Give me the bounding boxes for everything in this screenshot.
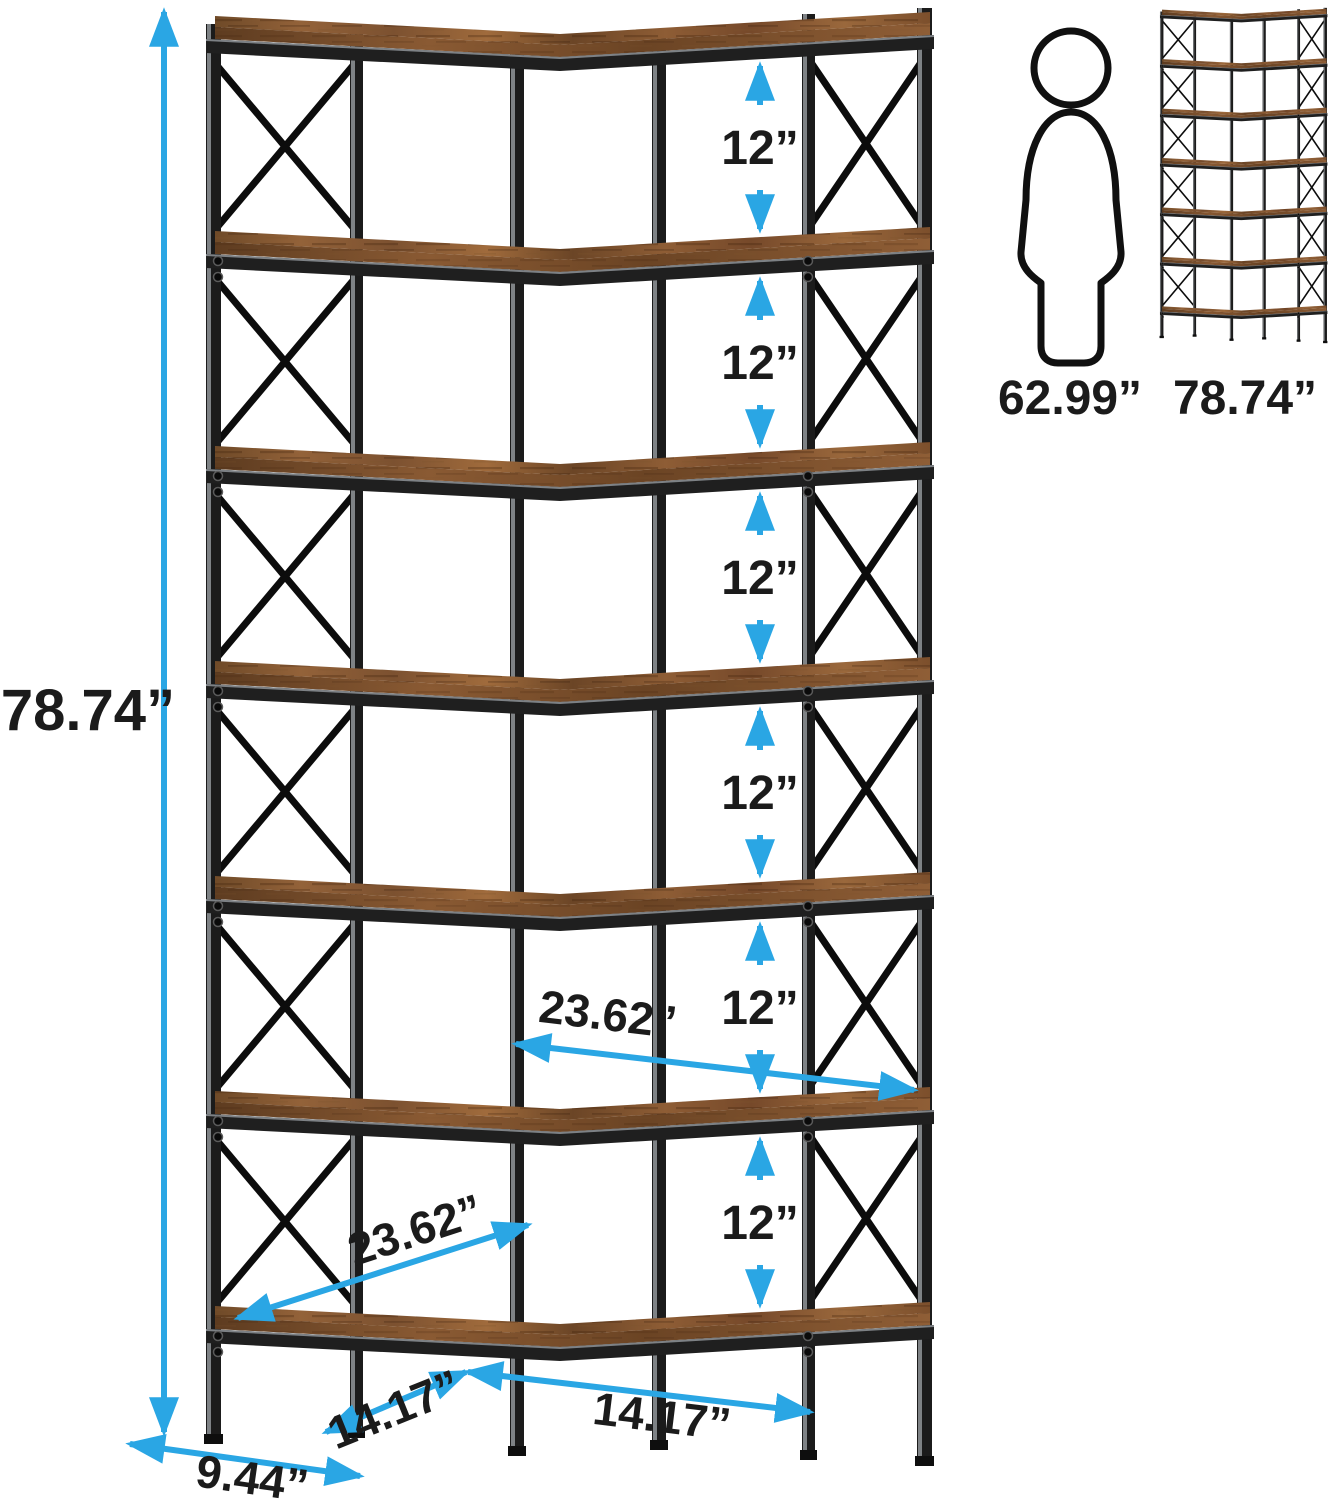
dimension-diagram-svg: 78.74” 12” 12” 12” 12” 12” 12” 23.62” 23… xyxy=(0,0,1328,1500)
tier-gap-dimension-4: 12” xyxy=(721,711,798,874)
side-depth-dimension: 9.44” xyxy=(130,1444,360,1500)
tier-gap-dimension-1: 12” xyxy=(721,66,798,229)
bottom-left-width-label: 14.17” xyxy=(320,1359,468,1459)
product-dimension-diagram: 78.74” 12” 12” 12” 12” 12” 12” 23.62” 23… xyxy=(0,0,1328,1500)
corner-bookshelf-graphic xyxy=(204,8,934,1466)
total-height-dimension: 78.74” xyxy=(1,12,175,1432)
thumbnail-height-label: 78.74” xyxy=(1173,372,1317,425)
tier-gap-label: 12” xyxy=(721,1197,798,1250)
tier-gap-label: 12” xyxy=(721,122,798,175)
tier-gap-dimension-2: 12” xyxy=(721,281,798,444)
frame-posts xyxy=(204,8,934,1466)
tier-gap-dimension-3: 12” xyxy=(721,496,798,659)
person-height-label: 62.99” xyxy=(998,372,1142,425)
thumbnail-bookshelf xyxy=(1160,8,1328,343)
tier-gap-label: 12” xyxy=(721,337,798,390)
bottom-right-width-label: 14.17” xyxy=(590,1382,733,1450)
person-silhouette-icon xyxy=(1021,31,1121,363)
side-depth-label: 9.44” xyxy=(193,1445,312,1500)
size-reference: 62.99” 78.74” xyxy=(998,8,1327,425)
tier-gap-dimension-5: 12” xyxy=(721,926,798,1089)
lower-width-dimension: 23.62” xyxy=(238,1184,528,1318)
total-height-label: 78.74” xyxy=(1,678,175,743)
upper-width-dimension: 23.62” xyxy=(516,980,914,1090)
tier-gap-dimension-6: 12” xyxy=(721,1141,798,1304)
tier-gap-label: 12” xyxy=(721,767,798,820)
upper-width-arrow xyxy=(516,1044,914,1090)
bottom-left-width-dimension: 14.17” xyxy=(320,1359,468,1459)
tier-gap-label: 12” xyxy=(721,552,798,605)
tier-gap-label: 12” xyxy=(721,982,798,1035)
